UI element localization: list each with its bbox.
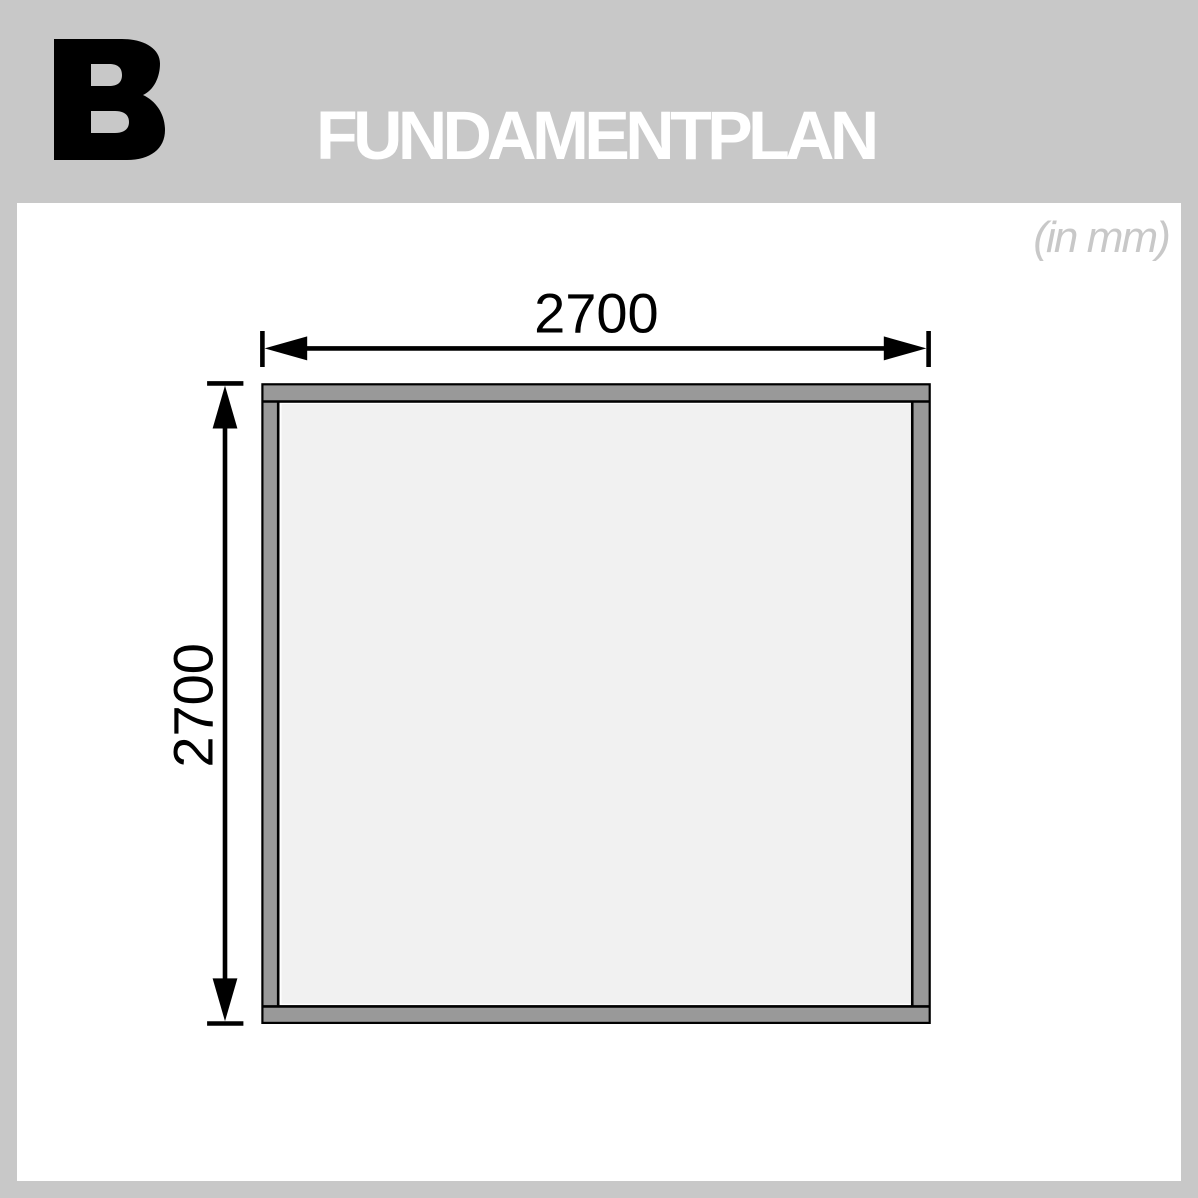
svg-text:2700: 2700 [162,643,225,768]
svg-text:2700: 2700 [534,281,659,344]
